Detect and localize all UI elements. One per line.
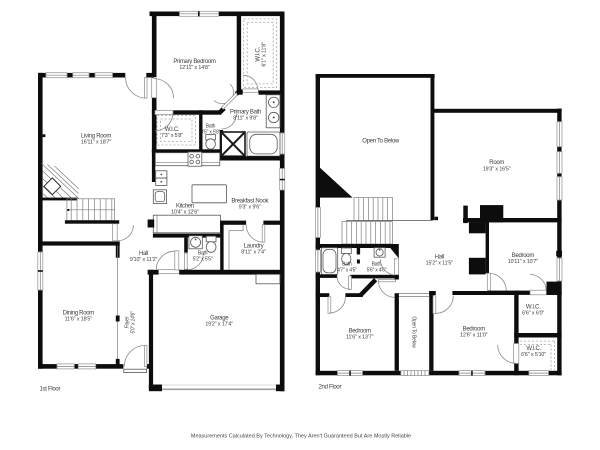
svg-text:4'7" x 4'5": 4'7" x 4'5" xyxy=(337,268,357,274)
svg-text:8'11" x 9'8": 8'11" x 9'8" xyxy=(233,116,258,122)
svg-text:16'11" x 18'7": 16'11" x 18'7" xyxy=(81,140,111,146)
svg-text:12'6" x 11'0": 12'6" x 11'0" xyxy=(460,333,488,339)
svg-text:6'6" x 6'0": 6'6" x 6'0" xyxy=(522,311,544,317)
svg-text:2nd Floor: 2nd Floor xyxy=(319,385,342,391)
svg-text:7'3" x 5'8": 7'3" x 5'8" xyxy=(161,133,183,139)
svg-text:Room: Room xyxy=(489,160,504,166)
svg-text:6'1" x 11'8": 6'1" x 11'8" xyxy=(261,42,267,67)
svg-text:5'2" x 5'5": 5'2" x 5'5" xyxy=(193,257,213,263)
svg-text:9'10" x 11'2": 9'10" x 11'2" xyxy=(130,257,158,263)
svg-text:5'0" x 14'6": 5'0" x 14'6" xyxy=(131,311,137,334)
svg-text:19'2" x 17'4": 19'2" x 17'4" xyxy=(205,322,233,328)
svg-text:Measurements Calculated By Tec: Measurements Calculated By Technology, T… xyxy=(191,434,411,440)
svg-text:8'11" x 7'4": 8'11" x 7'4" xyxy=(241,249,266,255)
svg-text:11'6" x 13'7": 11'6" x 13'7" xyxy=(346,335,374,341)
svg-text:Open To Below: Open To Below xyxy=(411,316,417,348)
svg-text:1st Floor: 1st Floor xyxy=(40,387,61,393)
svg-text:10'11" x 10'7": 10'11" x 10'7" xyxy=(508,259,538,265)
svg-text:19'3" x 16'5": 19'3" x 16'5" xyxy=(483,167,511,173)
svg-text:6'6" x 5'10": 6'6" x 5'10" xyxy=(521,352,546,358)
svg-text:9'3" x 9'6": 9'3" x 9'6" xyxy=(239,205,261,211)
svg-text:11'6" x 18'5": 11'6" x 18'5" xyxy=(65,317,93,323)
svg-text:10'4" x 12'6": 10'4" x 12'6" xyxy=(171,210,199,216)
svg-text:15'2" x 11'5": 15'2" x 11'5" xyxy=(426,261,454,267)
svg-text:3'5" x 5'8": 3'5" x 5'8" xyxy=(201,130,221,136)
svg-text:12'11" x 14'8": 12'11" x 14'8" xyxy=(179,65,209,71)
svg-text:Open To Below: Open To Below xyxy=(362,139,400,145)
